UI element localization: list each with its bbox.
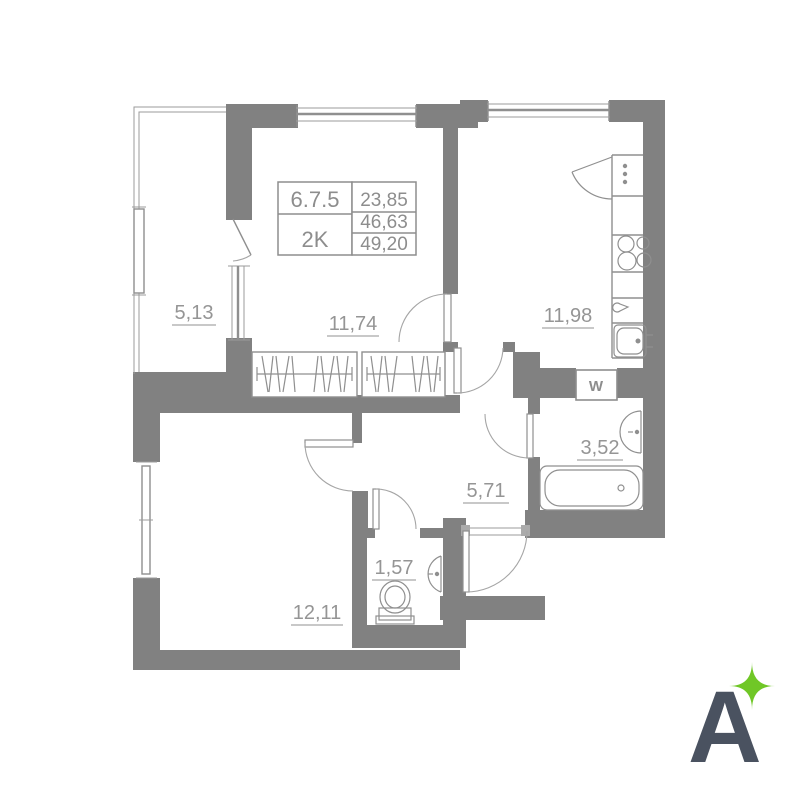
bedroom-door xyxy=(305,440,353,491)
bathroom-sink-icon xyxy=(620,411,641,453)
floor-plan: W 5,13 11,74 xyxy=(0,0,800,800)
living-area-label: 11,74 xyxy=(329,313,378,335)
bathtub-icon xyxy=(540,466,643,510)
bedroom-area-label: 12,11 xyxy=(293,602,342,624)
living-window xyxy=(296,105,417,127)
wc-sink-icon xyxy=(428,556,441,592)
tap-icon xyxy=(613,303,628,312)
kitchen-window xyxy=(487,101,610,121)
washing-machine-label: W xyxy=(589,378,604,395)
total-area-value: 49,20 xyxy=(360,234,408,255)
wc-door xyxy=(373,489,416,529)
wardrobe-closets xyxy=(252,352,445,397)
logo: A xyxy=(688,662,775,784)
bathroom-door xyxy=(485,414,533,458)
bathroom-area-label: 3,52 xyxy=(581,437,620,459)
living-area-value: 23,85 xyxy=(360,190,408,211)
balcony-glazing xyxy=(132,107,226,374)
wardrobe-1 xyxy=(252,352,357,397)
unit-number: 6.7.5 xyxy=(291,187,340,212)
fridge-icon xyxy=(572,157,627,199)
balcony-window-bar xyxy=(134,209,144,293)
floorplan-page: W 5,13 11,74 xyxy=(0,0,800,800)
area-wo-balcony-value: 46,63 xyxy=(360,212,408,233)
hallway-area-label: 5,71 xyxy=(467,480,506,502)
bedroom-window xyxy=(136,462,157,578)
wc-area-label: 1,57 xyxy=(375,557,414,579)
balcony-area-label: 5,13 xyxy=(175,302,214,324)
washing-machine-icon: W xyxy=(576,370,617,400)
toilet-icon xyxy=(376,581,414,624)
kitchen-door xyxy=(454,348,503,393)
balcony-room-window xyxy=(228,266,250,340)
entrance-door xyxy=(461,525,530,592)
kitchen-area-label: 11,98 xyxy=(544,305,593,327)
wardrobe-2 xyxy=(362,352,445,397)
balcony-door xyxy=(233,219,251,261)
living-door xyxy=(399,294,451,342)
unit-type: 2K xyxy=(302,227,329,252)
info-table: 6.7.5 2K 23,85 46,63 49,20 xyxy=(278,182,416,255)
